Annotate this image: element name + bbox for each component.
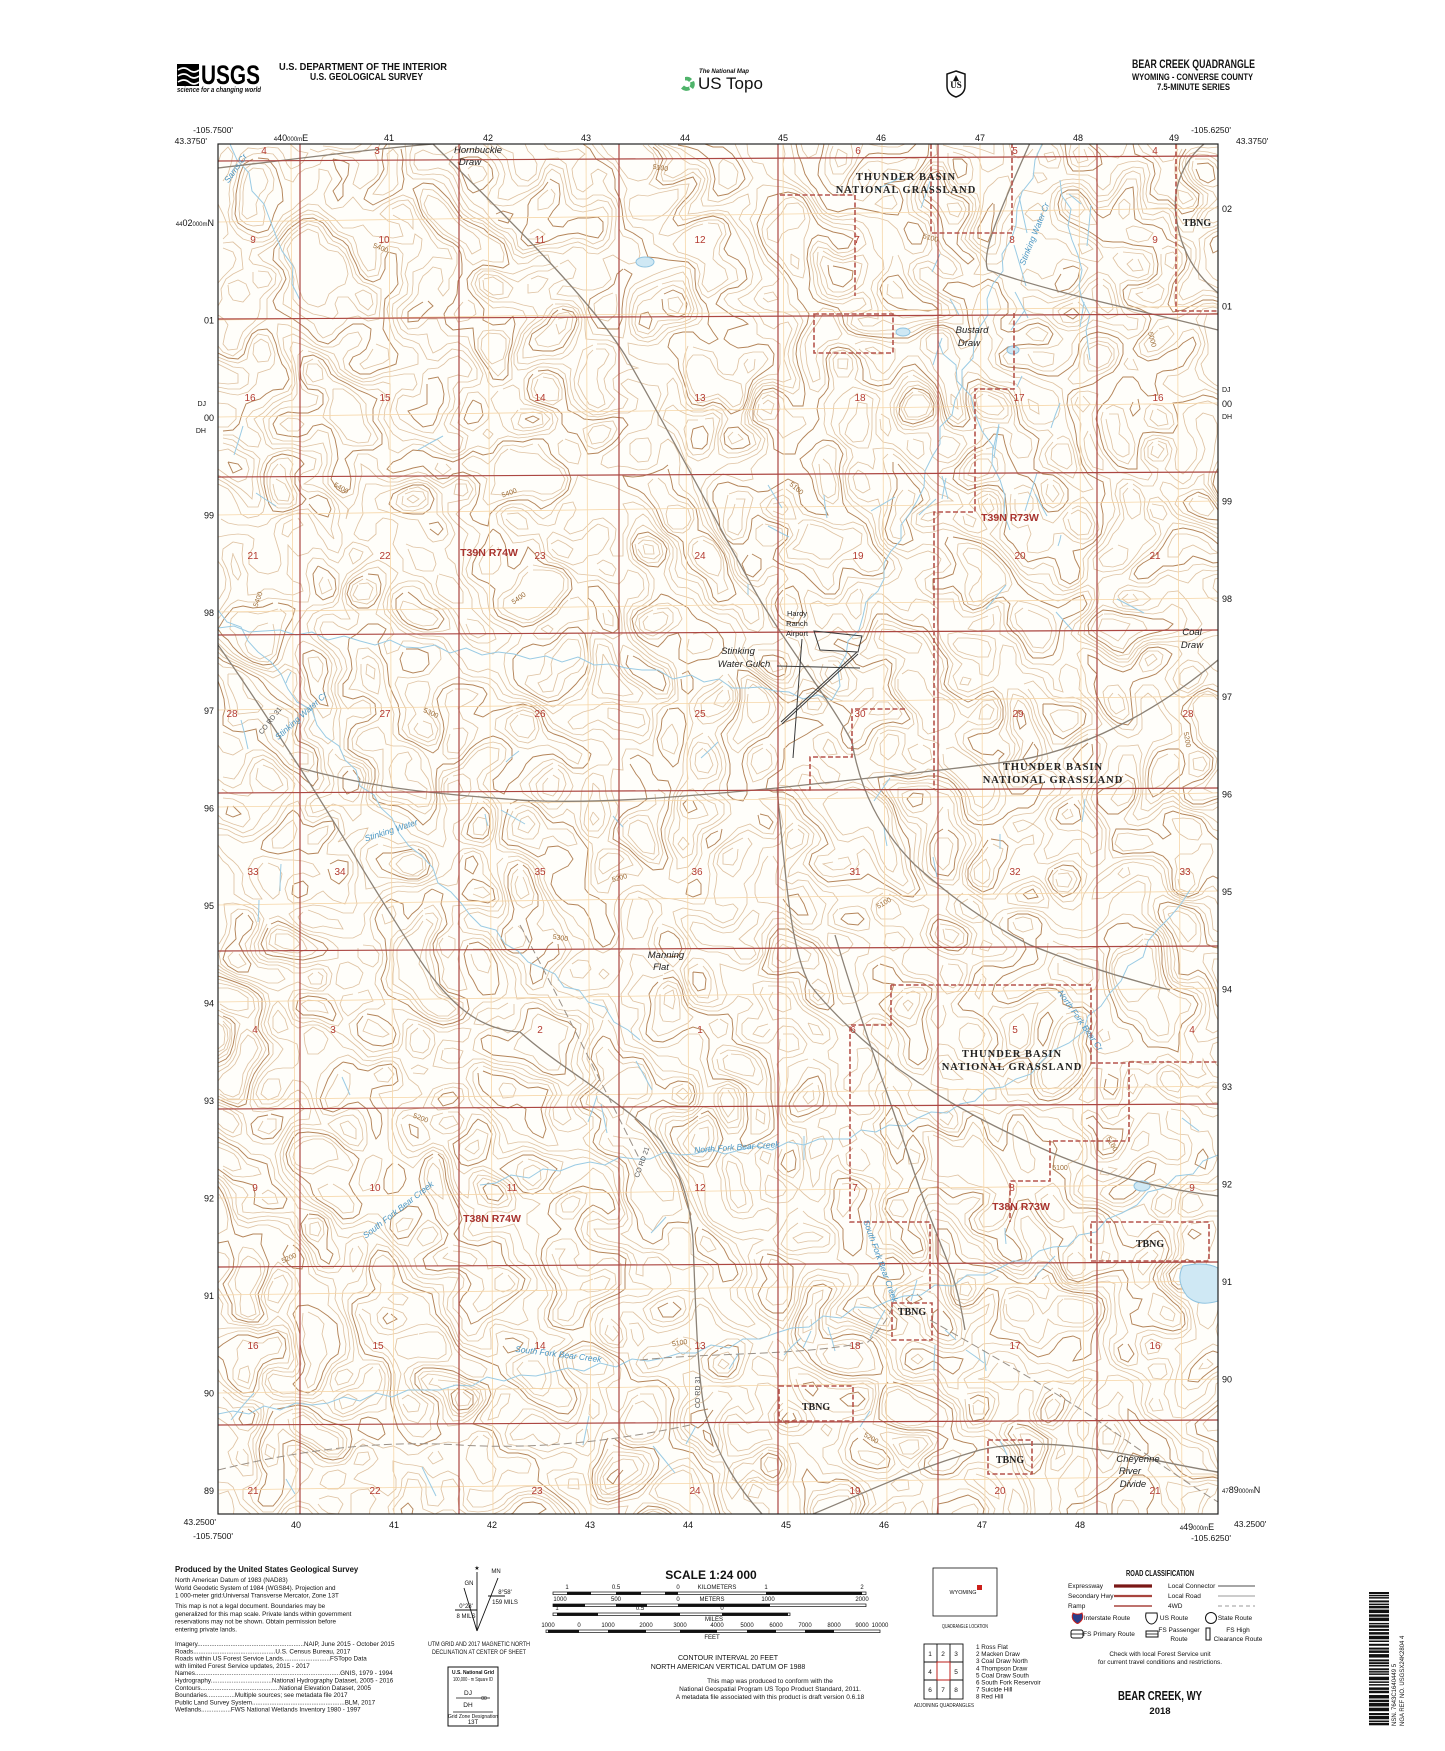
- svg-text:7: 7: [852, 1183, 858, 1194]
- svg-text:METERS: METERS: [699, 1597, 724, 1603]
- svg-text:16: 16: [244, 393, 256, 404]
- svg-text:Local Connector: Local Connector: [1168, 1583, 1216, 1590]
- svg-text:48: 48: [1075, 1520, 1085, 1530]
- svg-text:TBNG: TBNG: [802, 1402, 831, 1413]
- svg-text:8 Red Hill: 8 Red Hill: [976, 1694, 1003, 1701]
- svg-text:Draw: Draw: [958, 338, 981, 349]
- svg-text:DJ: DJ: [464, 1690, 472, 1697]
- svg-text:13: 13: [694, 393, 706, 404]
- svg-text:US: US: [950, 80, 962, 90]
- svg-text:32: 32: [1009, 867, 1021, 878]
- svg-text:6: 6: [928, 1687, 932, 1694]
- svg-text:Hydrography...................: Hydrography.............................…: [175, 1678, 394, 1685]
- svg-text:46: 46: [879, 1520, 889, 1530]
- svg-text:Secondary Hwy: Secondary Hwy: [1068, 1593, 1114, 1600]
- svg-text:10000: 10000: [872, 1623, 889, 1629]
- svg-text:28: 28: [226, 709, 238, 720]
- svg-text:Water Gulch: Water Gulch: [718, 659, 771, 670]
- svg-text:93: 93: [204, 1096, 214, 1106]
- svg-text:99: 99: [204, 511, 214, 521]
- svg-text:96: 96: [204, 803, 214, 813]
- svg-text:16: 16: [247, 1341, 259, 1352]
- svg-text:reservations may not be shown.: reservations may not be shown. Obtain pe…: [175, 1619, 336, 1626]
- svg-text:45: 45: [781, 1520, 791, 1530]
- svg-text:DH: DH: [463, 1702, 473, 1709]
- svg-text:Names.........................: Names...................................…: [175, 1670, 393, 1677]
- svg-text:5: 5: [954, 1669, 958, 1676]
- svg-text:15: 15: [379, 393, 391, 404]
- svg-text:National Geospatial Program US: National Geospatial Program US Topo Prod…: [679, 1686, 861, 1693]
- svg-text:9: 9: [1189, 1183, 1195, 1194]
- svg-text:95: 95: [1222, 887, 1232, 897]
- svg-text:Route: Route: [1170, 1636, 1188, 1643]
- svg-text:Public Land Survey Sy: Public Land Survey System...............…: [175, 1699, 376, 1706]
- svg-text:96: 96: [1222, 789, 1232, 799]
- svg-text:44: 44: [683, 1520, 693, 1530]
- svg-text:DJ: DJ: [1222, 387, 1231, 394]
- svg-text:TBNG: TBNG: [996, 1455, 1025, 1466]
- svg-text:33: 33: [1179, 867, 1191, 878]
- svg-text:2 Macken Draw: 2 Macken Draw: [976, 1651, 1020, 1658]
- svg-text:DH: DH: [1222, 414, 1232, 421]
- svg-text:6000: 6000: [769, 1623, 783, 1629]
- svg-text:5: 5: [1012, 1025, 1018, 1036]
- svg-text:5100: 5100: [1052, 1165, 1068, 1172]
- svg-text:Wetlands.................FWS: Wetlands.................FWS National We…: [175, 1707, 361, 1714]
- svg-text:01: 01: [1222, 302, 1232, 312]
- svg-text:27: 27: [379, 709, 391, 720]
- svg-text:FS High: FS High: [1226, 1627, 1250, 1634]
- svg-text:NGA REF NO. USGSX24K2804 4: NGA REF NO. USGSX24K2804 4: [1400, 1635, 1406, 1726]
- svg-text:This map was produced to confo: This map was produced to conform with th…: [707, 1678, 833, 1685]
- svg-text:TBNG: TBNG: [1136, 1239, 1165, 1250]
- svg-text:FEET: FEET: [704, 1635, 720, 1641]
- svg-text:8°58': 8°58': [498, 1590, 512, 1596]
- svg-text:1000: 1000: [601, 1623, 615, 1629]
- svg-text:4: 4: [252, 1025, 258, 1036]
- svg-text:State Route: State Route: [1218, 1615, 1253, 1622]
- svg-text:Boundaries................Mult: Boundaries................Multiple sourc…: [175, 1692, 348, 1699]
- svg-text:14: 14: [534, 393, 546, 404]
- svg-text:Manning: Manning: [648, 950, 685, 961]
- svg-text:8: 8: [1009, 235, 1015, 246]
- svg-text:UTM GRID AND 2017 MAGNETIC NOR: UTM GRID AND 2017 MAGNETIC NORTH: [428, 1641, 530, 1648]
- svg-text:41: 41: [384, 133, 394, 143]
- svg-text:Divide: Divide: [1120, 1479, 1146, 1490]
- svg-text:GN: GN: [465, 1581, 474, 1587]
- svg-text:Roads.........................: Roads...................................…: [175, 1648, 351, 1655]
- svg-text:MN: MN: [491, 1569, 500, 1575]
- svg-text:NORTH AMERICAN VERTICAL DATUM: NORTH AMERICAN VERTICAL DATUM OF 1988: [651, 1664, 806, 1671]
- svg-text:Bustard: Bustard: [956, 325, 989, 336]
- svg-text:Hornbuckle: Hornbuckle: [454, 145, 502, 156]
- svg-text:★: ★: [474, 1565, 479, 1572]
- svg-text:47: 47: [975, 133, 985, 143]
- svg-text:4 Thompson Draw: 4 Thompson Draw: [976, 1665, 1028, 1672]
- svg-text:21: 21: [247, 551, 259, 562]
- svg-text:41: 41: [389, 1520, 399, 1530]
- svg-text:46: 46: [876, 133, 886, 143]
- svg-text:33: 33: [247, 867, 259, 878]
- svg-text:24: 24: [694, 551, 706, 562]
- svg-text:13T: 13T: [468, 1720, 479, 1726]
- svg-text:3: 3: [374, 146, 380, 157]
- svg-text:43.2500': 43.2500': [184, 1517, 217, 1527]
- svg-text:7: 7: [854, 235, 860, 246]
- svg-text:34: 34: [334, 867, 346, 878]
- svg-text:THUNDER BASIN: THUNDER BASIN: [856, 172, 956, 183]
- svg-text:4WD: 4WD: [1168, 1603, 1183, 1610]
- svg-text:4: 4: [261, 146, 267, 157]
- svg-text:10: 10: [369, 1183, 381, 1194]
- svg-text:Airport: Airport: [786, 629, 809, 638]
- svg-text:5000: 5000: [740, 1623, 754, 1629]
- svg-text:for current travel conditions: for current travel conditions and restri…: [1098, 1659, 1222, 1666]
- svg-text:95: 95: [204, 901, 214, 911]
- svg-text:Draw: Draw: [459, 157, 482, 168]
- svg-text:River: River: [1119, 1466, 1142, 1477]
- svg-text:BEAR CREEK, WY: BEAR CREEK, WY: [1118, 1688, 1202, 1703]
- svg-text:with limited Forest Service up: with limited Forest Service updates, 201…: [174, 1663, 310, 1670]
- svg-text:US Topo: US Topo: [698, 74, 763, 93]
- svg-text:01: 01: [204, 316, 214, 326]
- svg-text:15: 15: [372, 1341, 384, 1352]
- svg-text:3000: 3000: [673, 1623, 687, 1629]
- svg-text:Contours......................: Contours................................…: [175, 1685, 371, 1692]
- svg-text:23: 23: [531, 1486, 543, 1497]
- svg-text:98: 98: [204, 608, 214, 618]
- svg-text:2000: 2000: [855, 1597, 869, 1603]
- svg-text:2: 2: [537, 1025, 543, 1036]
- svg-text:98: 98: [1222, 594, 1232, 604]
- svg-text:00: 00: [481, 1696, 487, 1702]
- svg-text:92: 92: [1222, 1180, 1232, 1190]
- svg-text:17: 17: [1013, 393, 1025, 404]
- svg-text:2000: 2000: [639, 1623, 653, 1629]
- svg-text:1: 1: [697, 1025, 703, 1036]
- svg-text:97: 97: [1222, 692, 1232, 702]
- svg-text:3 Coal Draw North: 3 Coal Draw North: [976, 1658, 1028, 1665]
- svg-text:NATIONAL GRASSLAND: NATIONAL GRASSLAND: [983, 775, 1124, 786]
- svg-text:A metadata file associated wit: A metadata file associated with this pro…: [676, 1694, 865, 1701]
- svg-text:21: 21: [1149, 1486, 1161, 1497]
- svg-text:KILOMETERS: KILOMETERS: [698, 1585, 737, 1591]
- svg-text:NATIONAL GRASSLAND: NATIONAL GRASSLAND: [942, 1062, 1083, 1073]
- svg-text:42: 42: [483, 133, 493, 143]
- svg-text:9: 9: [1152, 235, 1158, 246]
- svg-text:99: 99: [1222, 497, 1232, 507]
- svg-text:Flat: Flat: [653, 962, 669, 973]
- svg-text:100,000 - m Square ID: 100,000 - m Square ID: [453, 1677, 493, 1683]
- svg-text:Cheyenne: Cheyenne: [1116, 1454, 1159, 1465]
- svg-text:T38N R74W: T38N R74W: [463, 1213, 521, 1225]
- svg-text:92: 92: [204, 1194, 214, 1204]
- svg-text:7 Suicide Hill: 7 Suicide Hill: [976, 1687, 1012, 1694]
- svg-text:DJ: DJ: [197, 401, 206, 408]
- svg-text:9: 9: [250, 235, 256, 246]
- svg-text:11: 11: [507, 1183, 518, 1194]
- svg-text:21: 21: [1149, 551, 1161, 562]
- svg-text:16: 16: [1149, 1341, 1161, 1352]
- svg-text:4: 4: [1189, 1025, 1195, 1036]
- svg-text:Imagery.......................: Imagery.................................…: [175, 1641, 395, 1648]
- svg-text:40: 40: [291, 1520, 301, 1530]
- svg-text:Roads within US Fores: Roads within US Forest Service Lands....…: [175, 1656, 367, 1663]
- svg-text:25: 25: [694, 709, 706, 720]
- svg-text:44: 44: [680, 133, 690, 143]
- svg-text:Clearance Route: Clearance Route: [1214, 1636, 1263, 1643]
- svg-text:48: 48: [1073, 133, 1083, 143]
- svg-text:8 MILS: 8 MILS: [456, 1614, 475, 1620]
- svg-text:7: 7: [941, 1687, 945, 1694]
- svg-text:BEAR CREEK QUADRANGLE: BEAR CREEK QUADRANGLE: [1132, 59, 1255, 71]
- svg-text:19: 19: [849, 1486, 861, 1497]
- svg-text:18: 18: [849, 1341, 861, 1352]
- svg-text:21: 21: [247, 1486, 259, 1497]
- svg-text:entering private lands.: entering private lands.: [175, 1626, 237, 1633]
- svg-text:1 000-meter grid:Universal Tra: 1 000-meter grid:Universal Transverse Me…: [175, 1593, 339, 1600]
- svg-text:-105.7500': -105.7500': [193, 125, 233, 135]
- svg-text:Produced by the United States: Produced by the United States Geological…: [175, 1565, 359, 1574]
- svg-text:43.3750': 43.3750': [175, 136, 208, 146]
- svg-text:North American Datum of 1983 (: North American Datum of 1983 (NAD83): [175, 1577, 288, 1584]
- svg-text:6: 6: [850, 1025, 856, 1036]
- svg-text:This map is not a legal docume: This map is not a legal document. Bounda…: [175, 1603, 326, 1610]
- svg-text:22: 22: [379, 551, 391, 562]
- svg-text:0°28': 0°28': [459, 1604, 473, 1610]
- svg-text:23: 23: [534, 551, 546, 562]
- svg-text:3: 3: [330, 1025, 336, 1036]
- svg-text:89: 89: [204, 1486, 214, 1496]
- svg-text:science for a changing world: science for a changing world: [177, 85, 261, 94]
- svg-text:2018: 2018: [1149, 1706, 1170, 1717]
- svg-text:6: 6: [855, 146, 861, 157]
- svg-text:TBNG: TBNG: [1183, 218, 1212, 229]
- svg-text:T39N R74W: T39N R74W: [460, 547, 518, 559]
- svg-text:Interstate Route: Interstate Route: [1084, 1615, 1131, 1622]
- svg-text:1: 1: [928, 1651, 932, 1658]
- svg-text:00: 00: [1222, 399, 1232, 409]
- svg-text:6 South Fork Reservoir: 6 South Fork Reservoir: [976, 1680, 1041, 1687]
- svg-text:U.S. National Grid: U.S. National Grid: [452, 1670, 495, 1676]
- svg-text:U.S. GEOLOGICAL SURVEY: U.S. GEOLOGICAL SURVEY: [310, 71, 423, 83]
- svg-text:43: 43: [581, 133, 591, 143]
- svg-text:8: 8: [1009, 1183, 1015, 1194]
- svg-text:20: 20: [994, 1486, 1006, 1497]
- svg-text:97: 97: [204, 706, 214, 716]
- svg-text:18: 18: [854, 393, 866, 404]
- svg-text:91: 91: [1222, 1277, 1232, 1287]
- svg-text:12: 12: [694, 1183, 706, 1194]
- svg-text:30: 30: [854, 709, 866, 720]
- svg-text:1000: 1000: [541, 1623, 555, 1629]
- svg-text:8: 8: [954, 1687, 958, 1694]
- svg-text:20: 20: [1014, 551, 1026, 562]
- svg-text:12: 12: [694, 235, 706, 246]
- svg-text:1 Ross Flat: 1 Ross Flat: [976, 1644, 1008, 1651]
- svg-text:Ranch: Ranch: [786, 619, 808, 628]
- svg-text:4000: 4000: [710, 1623, 724, 1629]
- svg-text:4: 4: [928, 1669, 932, 1676]
- svg-text:-105.7500': -105.7500': [193, 1531, 233, 1541]
- svg-text:500: 500: [611, 1597, 622, 1603]
- svg-text:NATIONAL GRASSLAND: NATIONAL GRASSLAND: [836, 185, 977, 196]
- svg-text:0.5: 0.5: [636, 1606, 645, 1612]
- svg-text:22: 22: [369, 1486, 381, 1497]
- svg-text:TBNG: TBNG: [898, 1307, 927, 1318]
- svg-text:-105.6250': -105.6250': [1191, 1533, 1231, 1543]
- svg-text:17: 17: [1009, 1341, 1021, 1352]
- svg-text:Coal: Coal: [1182, 627, 1202, 638]
- svg-text:93: 93: [1222, 1082, 1232, 1092]
- svg-text:Check with local Forest Servic: Check with local Forest Service unit: [1109, 1651, 1210, 1658]
- svg-text:1000: 1000: [761, 1597, 775, 1603]
- svg-text:1000: 1000: [553, 1597, 567, 1603]
- svg-text:47: 47: [977, 1520, 987, 1530]
- svg-text:49: 49: [1169, 133, 1179, 143]
- svg-text:SCALE 1:24 000: SCALE 1:24 000: [665, 1568, 757, 1582]
- svg-text:9: 9: [252, 1183, 258, 1194]
- svg-text:CONTOUR INTERVAL 20 FEET: CONTOUR INTERVAL 20 FEET: [678, 1655, 779, 1662]
- svg-text:5 Coal Draw South: 5 Coal Draw South: [976, 1672, 1029, 1679]
- svg-text:00: 00: [204, 413, 214, 423]
- svg-text:19: 19: [852, 551, 864, 562]
- svg-text:US Route: US Route: [1160, 1615, 1189, 1622]
- svg-text:Ramp: Ramp: [1068, 1603, 1086, 1610]
- svg-text:7.5-MINUTE SERIES: 7.5-MINUTE SERIES: [1157, 82, 1230, 93]
- svg-text:World Geodetic System of 1984: World Geodetic System of 1984 (WGS84). P…: [175, 1585, 336, 1592]
- svg-text:3: 3: [954, 1651, 958, 1658]
- svg-text:Local Road: Local Road: [1168, 1593, 1201, 1600]
- svg-text:159 MILS: 159 MILS: [492, 1600, 518, 1606]
- svg-text:7000: 7000: [798, 1623, 812, 1629]
- svg-text:36: 36: [691, 867, 703, 878]
- svg-text:13: 13: [694, 1341, 706, 1352]
- svg-text:Expressway: Expressway: [1068, 1583, 1104, 1590]
- svg-text:94: 94: [1222, 984, 1232, 994]
- svg-text:26: 26: [534, 709, 546, 720]
- svg-text:Stinking: Stinking: [721, 646, 756, 657]
- svg-text:24: 24: [689, 1486, 701, 1497]
- svg-text:43.2500': 43.2500': [1234, 1519, 1267, 1529]
- svg-text:FS Primary Route: FS Primary Route: [1083, 1631, 1135, 1638]
- svg-text:42: 42: [487, 1520, 497, 1530]
- svg-text:THUNDER BASIN: THUNDER BASIN: [962, 1049, 1062, 1060]
- svg-text:43.3750': 43.3750': [1236, 136, 1269, 146]
- svg-text:2: 2: [941, 1651, 945, 1658]
- svg-text:8000: 8000: [827, 1623, 841, 1629]
- svg-text:4: 4: [1152, 146, 1158, 157]
- svg-text:29: 29: [1012, 709, 1024, 720]
- svg-text:generalized for this map scale: generalized for this map scale. Private …: [175, 1611, 352, 1618]
- svg-text:43: 43: [585, 1520, 595, 1530]
- svg-text:Hardy: Hardy: [787, 609, 807, 618]
- svg-text:31: 31: [849, 867, 861, 878]
- svg-text:91: 91: [204, 1291, 214, 1301]
- svg-text:T38N R73W: T38N R73W: [992, 1201, 1050, 1213]
- svg-text:QUADRANGLE LOCATION: QUADRANGLE LOCATION: [942, 1624, 988, 1630]
- svg-text:11: 11: [535, 235, 546, 246]
- svg-text:T39N R73W: T39N R73W: [981, 512, 1039, 524]
- svg-text:THUNDER BASIN: THUNDER BASIN: [1003, 762, 1103, 773]
- svg-text:90: 90: [1222, 1375, 1232, 1385]
- svg-text:35: 35: [534, 867, 546, 878]
- svg-text:NSN. 7643C1640449 5: NSN. 7643C1640449 5: [1392, 1663, 1398, 1726]
- svg-text:45: 45: [778, 133, 788, 143]
- svg-text:DECLINATION AT CENTER OF SHEET: DECLINATION AT CENTER OF SHEET: [432, 1649, 526, 1656]
- svg-text:94: 94: [204, 998, 214, 1008]
- svg-text:FS Passenger: FS Passenger: [1158, 1627, 1200, 1634]
- svg-text:16: 16: [1152, 393, 1164, 404]
- svg-text:CO RD 31: CO RD 31: [695, 1376, 702, 1408]
- svg-text:ADJOINING QUADRANGLES: ADJOINING QUADRANGLES: [914, 1703, 974, 1709]
- svg-text:28: 28: [1182, 709, 1194, 720]
- svg-text:Draw: Draw: [1181, 640, 1204, 651]
- svg-text:5: 5: [1012, 146, 1018, 157]
- svg-text:DH: DH: [196, 428, 206, 435]
- svg-text:9000: 9000: [855, 1623, 869, 1629]
- svg-text:02: 02: [1222, 204, 1232, 214]
- svg-text:-105.6250': -105.6250': [1191, 125, 1231, 135]
- svg-text:ROAD CLASSIFICATION: ROAD CLASSIFICATION: [1126, 1569, 1194, 1578]
- svg-text:0.5: 0.5: [612, 1585, 621, 1591]
- svg-text:90: 90: [204, 1389, 214, 1399]
- svg-text:WYOMING: WYOMING: [950, 1590, 977, 1596]
